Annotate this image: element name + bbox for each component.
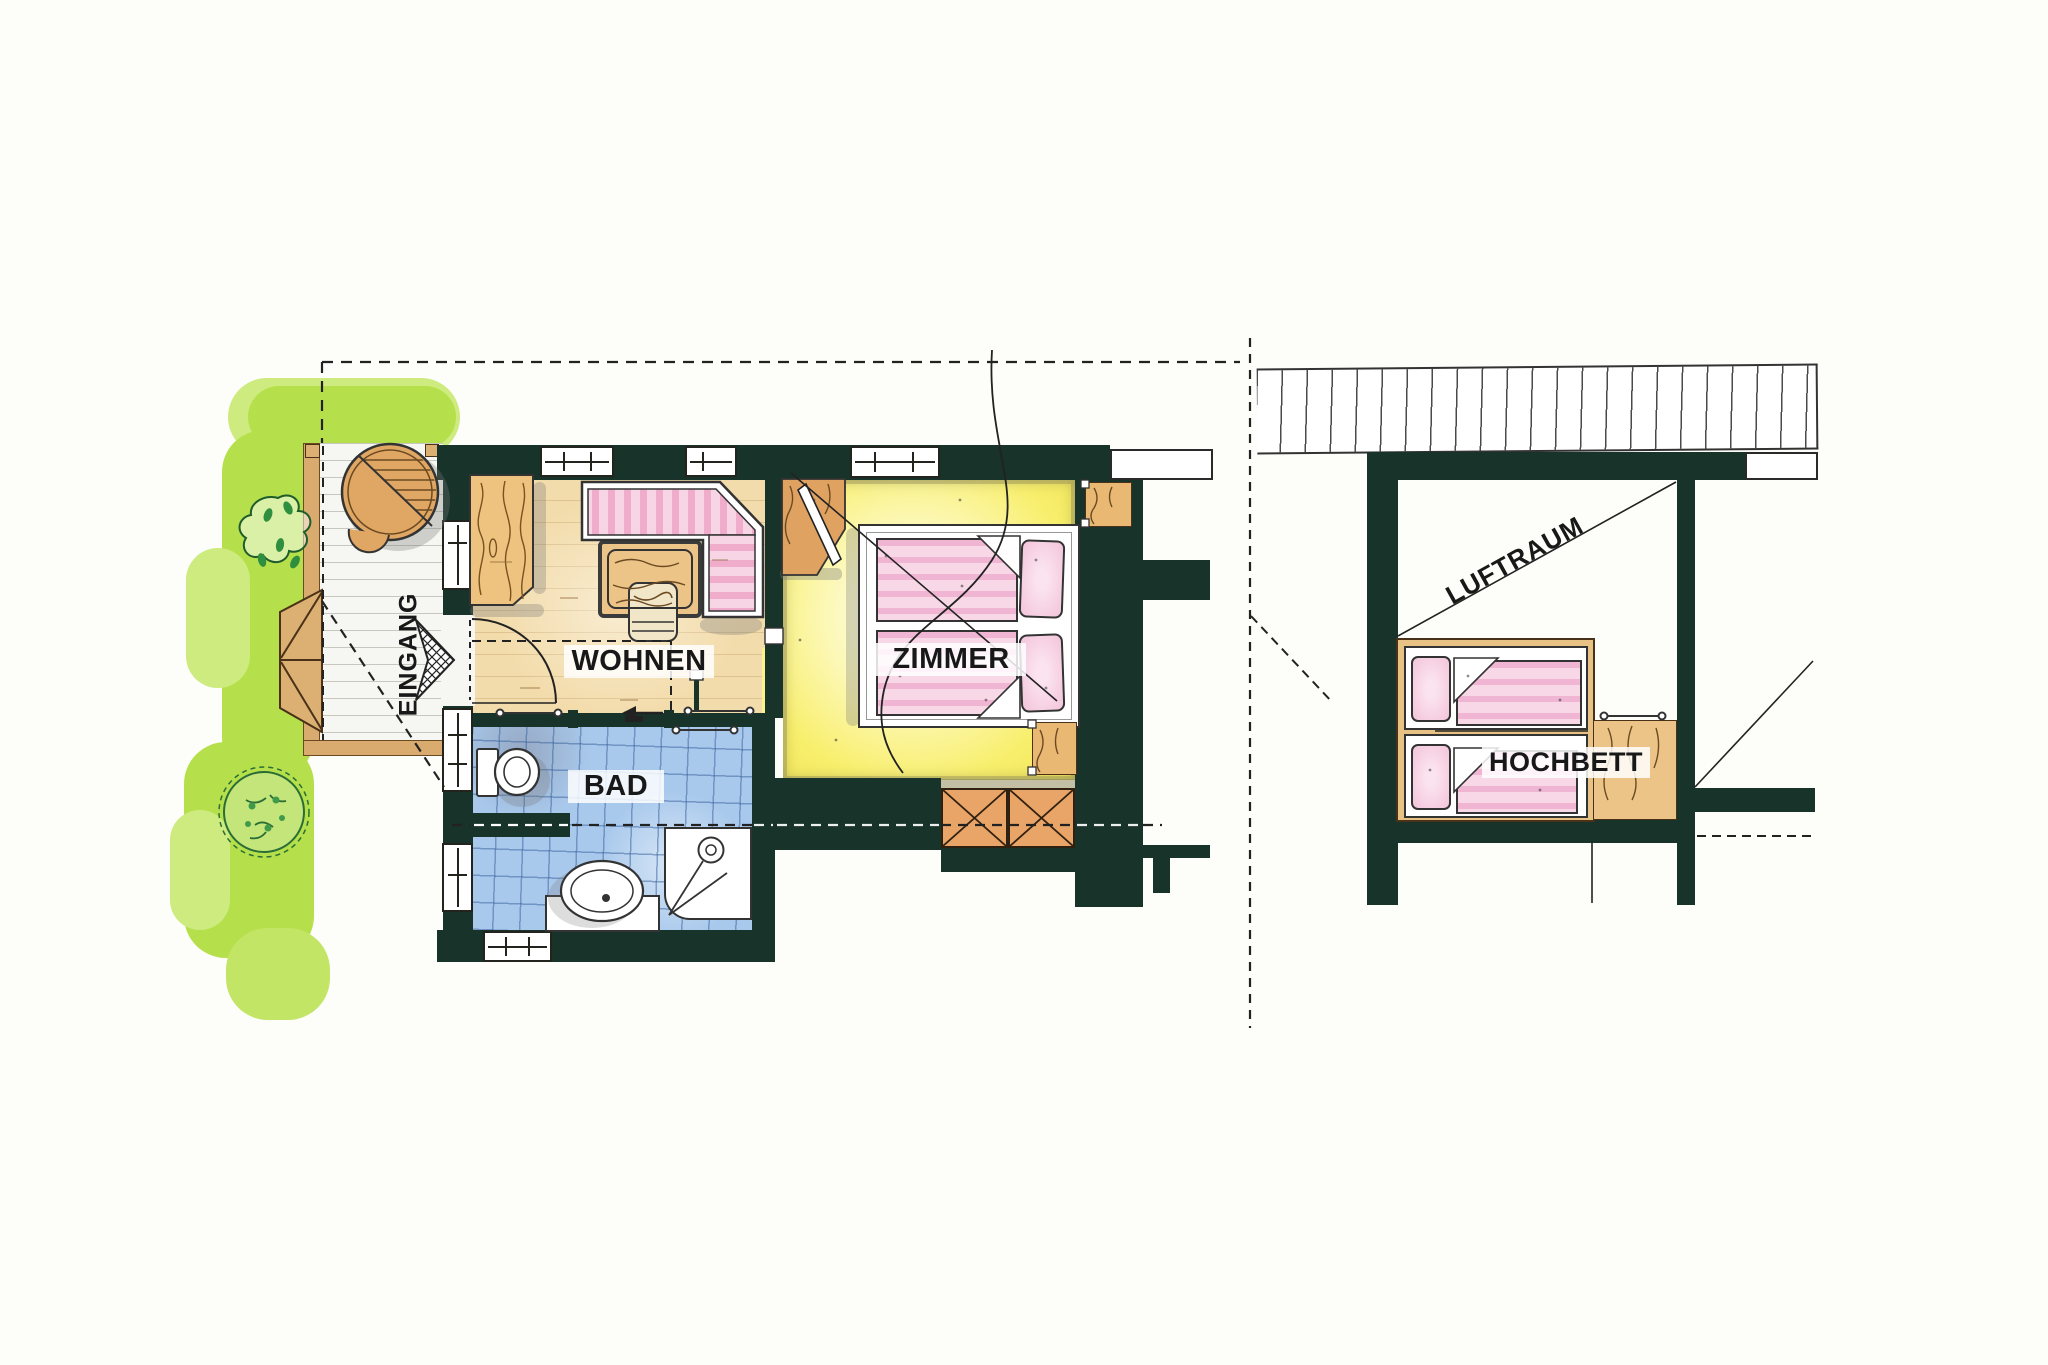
wardrobe-shadow [470,604,544,617]
label-zimmer: ZIMMER [876,643,1026,676]
crate [941,788,1008,848]
terrace-beam-left [303,443,320,750]
wall-arm-upper [1143,560,1210,600]
terrace-beam-bottom [303,740,444,756]
stool [628,582,678,642]
loft-wall-top [1367,452,1745,480]
bad-partition-stub [470,813,570,837]
wall-outline-neighbor [1110,449,1213,480]
window [540,446,614,477]
window [850,446,940,478]
loft-wall-bottom [1398,820,1677,843]
wall-post-low [1153,858,1170,893]
loft-wall-outline [1745,452,1818,480]
terrace-deck [320,443,443,750]
floor-plan-page: EINGANG WOHNEN BAD ZIMMER LUFTRAUM HOCHB… [0,0,2048,1365]
roof-hatch-band [1257,364,1819,455]
lawn-patch [170,810,230,930]
window [442,520,473,590]
wall-chunk-south [775,778,941,850]
loft-wall-right [1677,480,1695,905]
wall-bad-right [752,727,775,930]
corner-wood [1085,482,1132,527]
wall-corridor [765,478,783,718]
wall-bottom-boxes [941,848,1077,872]
lawn-patch [186,548,250,688]
stool-shadow [700,615,762,635]
pillow [1019,539,1066,618]
washbasin-counter [545,895,660,932]
window [442,708,473,792]
label-luftraum: LUFTRAUM [1435,508,1595,615]
window [685,446,737,477]
mattress-top [876,538,1018,622]
wardrobe-shadow [533,482,546,594]
window [483,931,552,962]
entrance-door-opening [441,615,475,706]
shower [664,827,752,920]
loft-wall-arm [1695,788,1815,812]
loft-wall-left [1367,480,1398,905]
wall-arm-lower [1143,845,1210,858]
label-wohnen: WOHNEN [564,645,714,678]
label-hochbett: HOCHBETT [1482,747,1650,778]
crate [1008,788,1075,848]
label-bad: BAD [568,770,664,803]
pillow [1411,744,1451,810]
terrace-post [305,444,320,458]
label-eingang: EINGANG [395,587,424,721]
wall-top [437,445,1110,480]
wall-wohnen-bad [443,713,775,727]
hochbett-mattress-top [1456,660,1582,726]
lawn-patch [226,928,330,1020]
pillow [1411,656,1451,722]
bedside-wood [1032,722,1077,775]
wall-right [1075,480,1143,907]
window [442,843,473,912]
